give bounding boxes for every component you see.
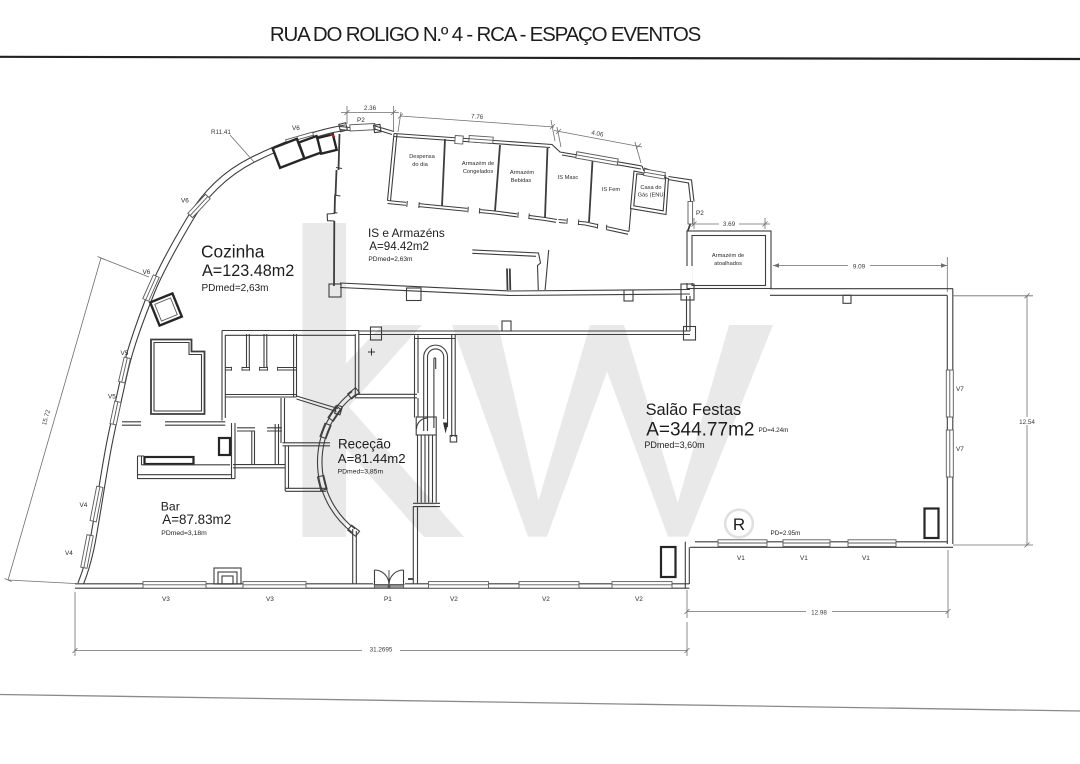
svg-text:Despensa: Despensa bbox=[409, 154, 435, 160]
svg-text:P2: P2 bbox=[357, 117, 365, 124]
svg-text:V7: V7 bbox=[956, 446, 964, 453]
svg-text:V2: V2 bbox=[635, 596, 643, 603]
svg-text:atoalhados: atoalhados bbox=[714, 261, 742, 267]
svg-text:A=123.48m2: A=123.48m2 bbox=[202, 262, 294, 280]
svg-text:IS e Armazéns: IS e Armazéns bbox=[368, 226, 445, 240]
svg-text:R11.41: R11.41 bbox=[211, 129, 231, 136]
svg-text:Bebidas: Bebidas bbox=[511, 178, 532, 184]
svg-text:7.76: 7.76 bbox=[471, 113, 484, 121]
svg-text:V6: V6 bbox=[181, 198, 189, 205]
svg-text:A=94.42m2: A=94.42m2 bbox=[369, 240, 429, 253]
svg-text:PD=4.24m: PD=4.24m bbox=[759, 427, 789, 434]
svg-text:V1: V1 bbox=[737, 555, 745, 562]
svg-text:Cozinha: Cozinha bbox=[201, 241, 265, 261]
svg-text:do dia: do dia bbox=[412, 162, 428, 168]
svg-text:V5: V5 bbox=[108, 394, 116, 401]
svg-text:V5: V5 bbox=[121, 350, 129, 357]
svg-text:PDmed=3,60m: PDmed=3,60m bbox=[644, 440, 704, 450]
svg-text:PD=2.95m: PD=2.95m bbox=[771, 530, 801, 537]
svg-text:Armazém: Armazém bbox=[510, 170, 535, 176]
svg-text:3.69: 3.69 bbox=[723, 221, 736, 228]
svg-text:Gás (ENU): Gás (ENU) bbox=[638, 193, 666, 199]
svg-text:Receção: Receção bbox=[338, 437, 391, 452]
svg-text:V7: V7 bbox=[956, 386, 964, 393]
svg-text:V3: V3 bbox=[162, 596, 170, 603]
svg-text:PDmed=2,63m: PDmed=2,63m bbox=[368, 256, 413, 263]
svg-text:2.36: 2.36 bbox=[364, 105, 377, 112]
svg-text:A=87.83m2: A=87.83m2 bbox=[162, 512, 231, 527]
svg-text:IS Fem: IS Fem bbox=[602, 187, 621, 193]
svg-text:V2: V2 bbox=[542, 596, 550, 603]
svg-text:Congelados: Congelados bbox=[463, 169, 494, 175]
svg-text:12.54: 12.54 bbox=[1019, 419, 1035, 426]
svg-text:RUA DO ROLIGO N.º 4 - RCA - ES: RUA DO ROLIGO N.º 4 - RCA - ESPAÇO EVENT… bbox=[270, 23, 701, 46]
svg-text:V2: V2 bbox=[450, 596, 458, 603]
svg-text:9.09: 9.09 bbox=[853, 264, 866, 271]
svg-text:V3: V3 bbox=[266, 596, 274, 603]
svg-text:V1: V1 bbox=[862, 555, 870, 562]
svg-text:Casa do: Casa do bbox=[640, 185, 661, 191]
svg-text:31.2695: 31.2695 bbox=[370, 647, 393, 654]
svg-text:Armazém de: Armazém de bbox=[712, 253, 744, 259]
svg-text:PDmed=3,18m: PDmed=3,18m bbox=[161, 530, 207, 537]
svg-text:IS Masc: IS Masc bbox=[558, 175, 579, 181]
svg-text:V6: V6 bbox=[292, 125, 300, 132]
svg-text:Armazém de: Armazém de bbox=[462, 161, 494, 167]
svg-text:P2: P2 bbox=[696, 210, 704, 217]
svg-text:PDmed=3,85m: PDmed=3,85m bbox=[338, 469, 384, 476]
svg-text:PDmed=2,63m: PDmed=2,63m bbox=[202, 283, 269, 294]
svg-text:V4: V4 bbox=[80, 502, 88, 509]
svg-text:12.98: 12.98 bbox=[811, 610, 827, 617]
svg-text:P1: P1 bbox=[384, 596, 392, 603]
svg-text:V1: V1 bbox=[800, 555, 808, 562]
svg-text:A=344.77m2: A=344.77m2 bbox=[646, 419, 754, 440]
svg-text:Salão Festas: Salão Festas bbox=[646, 401, 742, 419]
svg-text:V4: V4 bbox=[65, 550, 73, 557]
svg-text:R: R bbox=[733, 515, 745, 534]
svg-text:A=81.44m2: A=81.44m2 bbox=[338, 451, 406, 466]
